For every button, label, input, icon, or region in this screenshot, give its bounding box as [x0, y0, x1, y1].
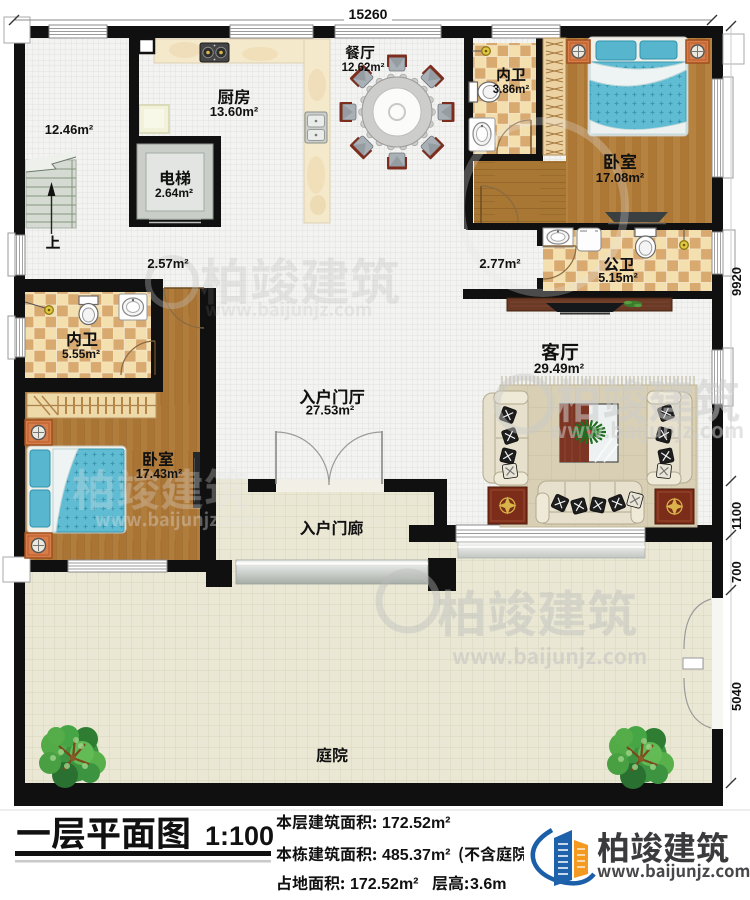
svg-text:3.6m: 3.6m	[470, 876, 506, 893]
svg-text:12.46m²: 12.46m²	[45, 122, 94, 137]
svg-text:5.55m²: 5.55m²	[62, 347, 100, 361]
svg-text:2.57m²: 2.57m²	[147, 256, 189, 271]
svg-text:29.49m²: 29.49m²	[534, 361, 585, 376]
svg-text:17.08m²: 17.08m²	[596, 170, 645, 185]
svg-text:1:100: 1:100	[205, 821, 274, 851]
svg-text:17.43m²: 17.43m²	[136, 467, 183, 481]
svg-text:2.64m²: 2.64m²	[155, 186, 193, 200]
svg-text:13.60m²: 13.60m²	[210, 104, 259, 119]
svg-text:5040: 5040	[729, 682, 744, 711]
svg-text:12.62m²: 12.62m²	[342, 62, 385, 74]
svg-text:172.52m²: 172.52m²	[382, 815, 451, 832]
svg-text:485.37m²: 485.37m²	[382, 847, 451, 864]
svg-text:15260: 15260	[349, 6, 388, 22]
svg-text:2.77m²: 2.77m²	[479, 256, 521, 271]
svg-text:9920: 9920	[729, 267, 744, 296]
svg-text:1100: 1100	[729, 502, 744, 530]
svg-text:700: 700	[729, 561, 744, 583]
svg-text:27.53m²: 27.53m²	[306, 403, 355, 418]
svg-text:3.86m²: 3.86m²	[493, 84, 530, 96]
svg-text:5.15m²: 5.15m²	[598, 271, 638, 285]
svg-text:172.52m²: 172.52m²	[350, 876, 419, 893]
